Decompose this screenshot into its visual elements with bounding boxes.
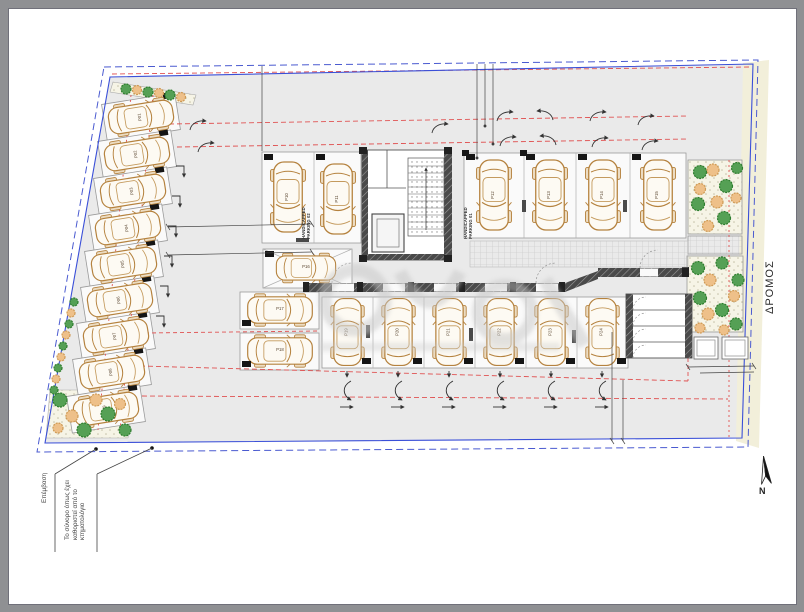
trellis-grid bbox=[688, 236, 742, 254]
shrub-icon bbox=[695, 184, 706, 195]
tree-icon bbox=[718, 212, 731, 225]
tree-icon bbox=[732, 274, 744, 286]
tree-icon bbox=[720, 180, 733, 193]
shrub-icon bbox=[695, 323, 705, 333]
shrub-icon bbox=[731, 193, 741, 203]
handicapped-parking-02-label: HANDICAPPED PARKING 02 bbox=[301, 209, 312, 239]
shrub-icon bbox=[53, 423, 63, 433]
handicapped-parking-01-label: HANDICAPPED PARKING 01 bbox=[463, 209, 474, 239]
car-label: P20 bbox=[395, 328, 400, 336]
tree-icon bbox=[121, 84, 131, 94]
car-label: P12 bbox=[490, 191, 495, 199]
tree-icon bbox=[50, 386, 58, 394]
car-label: P21 bbox=[446, 328, 451, 336]
site-plan-drawing: P01 P02 P03 P04 P05 P06 P07 P08 P09 P10 … bbox=[0, 0, 804, 612]
shrub-icon bbox=[52, 375, 60, 383]
tree-icon bbox=[53, 393, 67, 407]
tree-icon bbox=[716, 257, 728, 269]
car-label: P24 bbox=[599, 328, 604, 336]
tree-icon bbox=[732, 163, 743, 174]
stair-core bbox=[359, 147, 452, 262]
shrub-icon bbox=[719, 325, 729, 335]
shrub-icon bbox=[155, 89, 164, 98]
shrub-icon bbox=[67, 309, 75, 317]
shrub-icon bbox=[703, 221, 714, 232]
tree-icon bbox=[70, 298, 78, 306]
shrub-icon bbox=[711, 196, 723, 208]
car-label: P11 bbox=[334, 195, 339, 203]
north-label: N bbox=[759, 486, 766, 496]
tree-icon bbox=[119, 424, 131, 436]
note-boundary: Το σύνορο όπως έχει καθοριστεί από το κτ… bbox=[64, 470, 87, 540]
car-label: P10 bbox=[284, 193, 289, 201]
note-intervention: Επέμβαση bbox=[41, 473, 49, 503]
shrub-icon bbox=[177, 93, 186, 102]
shrub-icon bbox=[707, 164, 719, 176]
car-label: P17 bbox=[276, 306, 284, 311]
tree-icon bbox=[730, 318, 742, 330]
storage-rooms bbox=[626, 294, 692, 358]
tree-icon bbox=[143, 87, 153, 97]
shrub-icon bbox=[90, 394, 102, 406]
car-label: P14 bbox=[599, 191, 604, 199]
car-label: P13 bbox=[546, 191, 551, 199]
tree-icon bbox=[77, 423, 91, 437]
shrub-icon bbox=[133, 86, 142, 95]
road-label: ΔΡΟΜΟΣ bbox=[764, 260, 776, 314]
tree-icon bbox=[692, 198, 705, 211]
tree-icon bbox=[694, 166, 707, 179]
plan-viewer-page: P01 P02 P03 P04 P05 P06 P07 P08 P09 P10 … bbox=[0, 0, 804, 612]
tree-icon bbox=[694, 292, 707, 305]
tree-icon bbox=[65, 320, 73, 328]
tree-icon bbox=[692, 262, 705, 275]
tree-icon bbox=[101, 407, 115, 421]
shrub-icon bbox=[729, 291, 740, 302]
car-label: P23 bbox=[548, 328, 553, 336]
north-arrow-icon bbox=[759, 456, 772, 485]
shrub-icon bbox=[704, 274, 716, 286]
tree-icon bbox=[59, 342, 67, 350]
shrub-icon bbox=[57, 353, 65, 361]
car-label: P15 bbox=[654, 191, 659, 199]
shrub-icon bbox=[115, 399, 126, 410]
tree-icon bbox=[54, 364, 62, 372]
car-label: P18 bbox=[276, 347, 284, 352]
shrub-icon bbox=[702, 308, 714, 320]
car-label: P16 bbox=[302, 264, 310, 269]
shrub-icon bbox=[66, 410, 78, 422]
tree-icon bbox=[165, 90, 175, 100]
shrub-icon bbox=[62, 331, 70, 339]
tree-icon bbox=[716, 304, 729, 317]
